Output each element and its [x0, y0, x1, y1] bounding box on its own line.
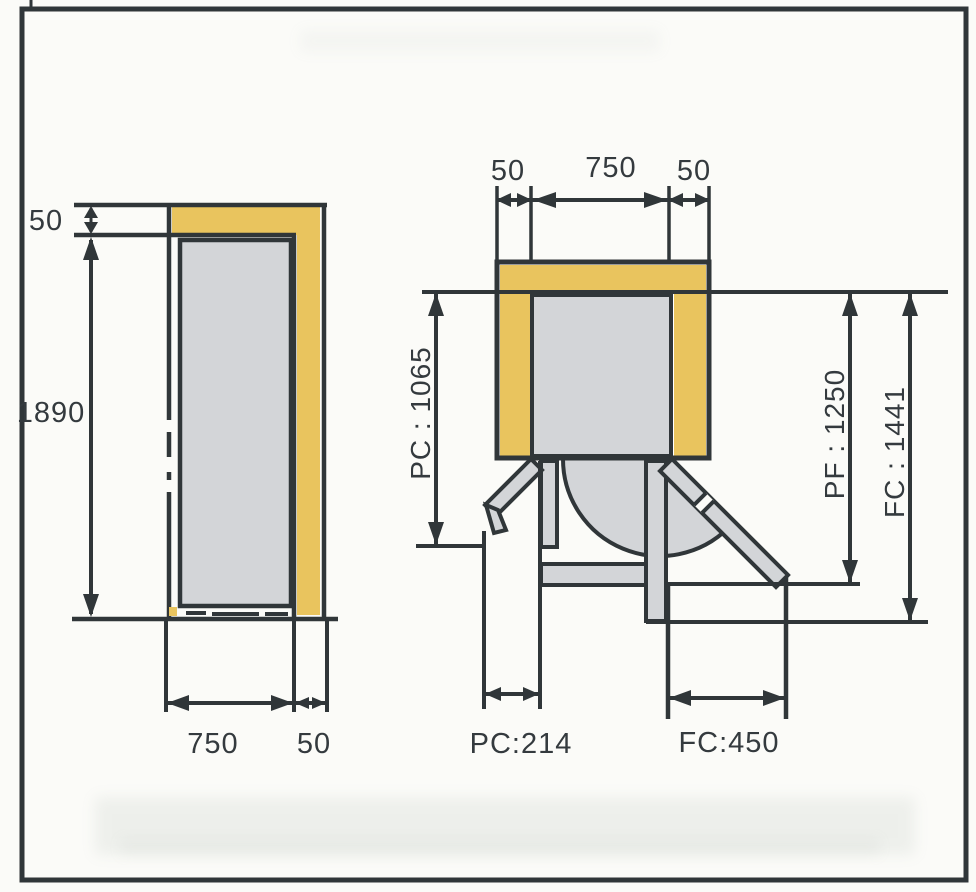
plan-top-right-clearance-label: 50 [677, 155, 711, 187]
plan-cabinet-body [532, 295, 671, 456]
fc-depth-label: FC : 1441 [879, 386, 910, 518]
side-rear-clearance-band [297, 235, 320, 615]
side-height-dim [83, 237, 99, 617]
side-top-clearance-dim [84, 206, 98, 234]
side-base-dashes [186, 613, 288, 614]
drawer-bar [541, 564, 647, 585]
side-height-label: 1890 [17, 397, 86, 429]
side-ceiling-clearance-band [172, 207, 320, 235]
side-base-yellow-chip [169, 607, 177, 616]
fc-width-label: FC:450 [678, 727, 779, 759]
plan-top-width-label: 750 [585, 152, 636, 184]
installation-clearance-drawing: 50 1890 750 50 [0, 0, 976, 892]
side-view: 50 1890 750 50 [17, 205, 338, 760]
side-bottom-width-label: 750 [187, 728, 238, 760]
side-top-clearance-label: 50 [29, 205, 63, 237]
pc-depth-label: PC : 1065 [405, 346, 436, 480]
plan-view: 50 750 50 PC : 1065 PF : 1250 FC : 1441 [405, 152, 948, 760]
drawing-canvas: 50 1890 750 50 [0, 0, 976, 892]
right-door-90deg [646, 461, 666, 621]
left-door-90deg [541, 461, 557, 547]
side-bottom-dims [166, 621, 327, 712]
plan-top-dims [496, 186, 710, 260]
left-door-open [485, 459, 542, 533]
pc-width-label: PC:214 [470, 728, 573, 760]
plan-top-left-clearance-label: 50 [491, 155, 525, 187]
pf-depth-label: PF : 1250 [819, 369, 850, 499]
side-cabinet-body [180, 240, 291, 606]
side-bottom-clearance-label: 50 [297, 728, 331, 760]
fc-width-dim [668, 577, 786, 719]
